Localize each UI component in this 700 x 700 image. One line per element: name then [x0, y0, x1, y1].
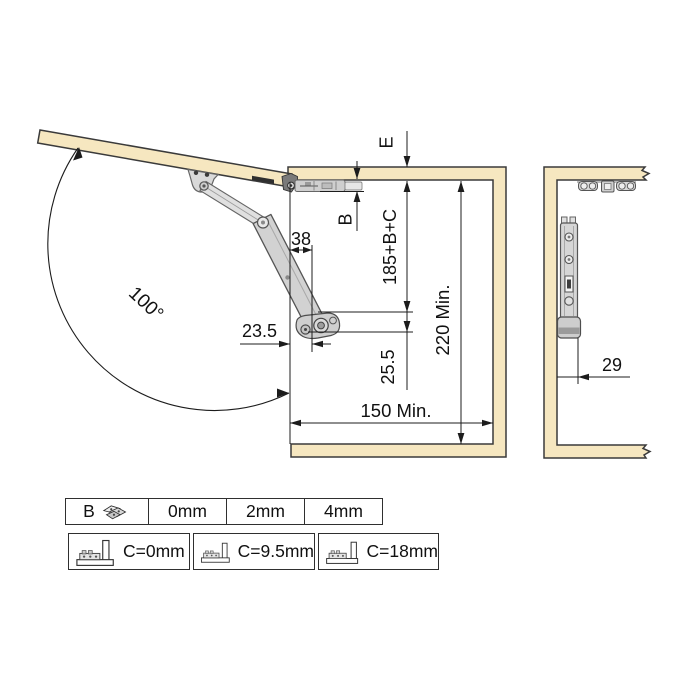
b-value-2mm: 2mm	[226, 499, 304, 524]
lift-mechanism-technical-drawing: 100°	[0, 0, 700, 700]
dim-185bc-label: 185+B+C	[380, 209, 400, 285]
c0-mounting-icon	[75, 536, 119, 568]
arm-rivet	[285, 275, 289, 279]
dim-38-label: 38	[291, 229, 311, 249]
top-mount-plate	[295, 180, 362, 192]
b-value-4mm: 4mm	[304, 499, 382, 524]
lift-arm-assembly	[188, 170, 340, 339]
dim-29-arrow	[578, 374, 589, 380]
drawing-canvas: 100°	[0, 0, 700, 700]
dim-25-5-label: 25.5	[378, 349, 398, 384]
dim-150-label: 150 Min.	[361, 400, 432, 421]
b-header-label: B	[83, 501, 95, 522]
c-option-18mm: C=18mm	[318, 533, 439, 570]
mount-plate-isometric-icon	[101, 500, 131, 524]
side-view-arm	[558, 217, 581, 338]
b-adjustment-table: B 0mm 2mm 4mm	[65, 498, 383, 525]
dim-b-label: B	[336, 213, 356, 225]
b-value-0mm: 0mm	[148, 499, 226, 524]
c95-mounting-icon	[200, 536, 234, 568]
c-option-0mm: C=0mm	[68, 533, 190, 570]
c-option-label: C=18mm	[367, 541, 438, 562]
c-option-label: C=9.5mm	[238, 541, 314, 562]
b-header-cell: B	[66, 499, 148, 524]
dim-e-label: E	[377, 136, 397, 148]
c18-mounting-icon	[325, 536, 363, 568]
bracket-screw	[205, 173, 209, 177]
bracket-screw	[194, 171, 198, 175]
c-option-label: C=0mm	[123, 541, 185, 562]
foot-screw	[330, 317, 337, 324]
angle-label: 100°	[124, 283, 167, 325]
dim-220-label: 220 Min.	[432, 285, 453, 356]
dim-23-5-label: 23.5	[242, 321, 277, 341]
dim-29-label: 29	[602, 355, 622, 375]
side-view-mount-clips	[577, 181, 636, 192]
c-option-9-5mm: C=9.5mm	[193, 533, 315, 570]
opening-angle-arc	[48, 147, 289, 411]
